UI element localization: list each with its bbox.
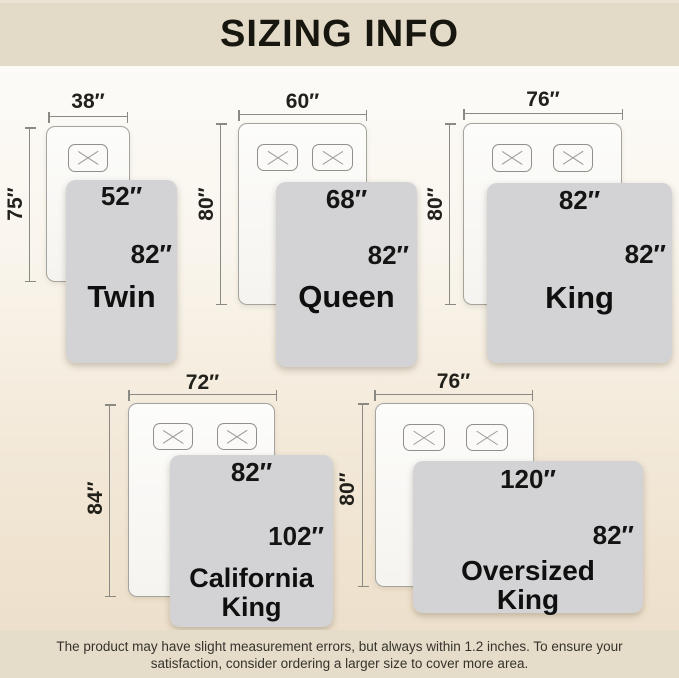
size-diagram-twin: 38″ 75″ 52″ 82″ Twin [0,0,679,678]
blanket-swatch [66,180,177,363]
blanket-length-label: 82″ [487,239,666,270]
blanket-length-label: 102″ [170,521,324,552]
blanket-width-label: 82″ [487,185,672,216]
sizing-info-infographic: SIZING INFO 38″ 75″ 52″ 82″ Twin 60″ 80″… [0,0,679,678]
pillow-icon [217,423,257,450]
mattress-length-label: 80″ [196,182,218,226]
width-dimension-line [238,114,367,115]
footer-note-line2: satisfaction, consider ordering a larger… [0,655,679,672]
size-diagram-california-king: 72″ 84″ 82″ 102″ California King [0,0,679,678]
size-name-line2: King [413,585,643,614]
length-dimension-line [362,403,363,587]
mattress-outline [46,126,130,282]
mattress-width-label: 76″ [463,88,623,112]
blanket-swatch [487,183,672,363]
mattress-length-label: 75″ [5,182,27,226]
mattress-outline [375,403,534,587]
width-dimension-line [463,113,623,114]
mattress-outline [238,123,367,305]
width-dimension-line [374,394,533,395]
blanket-swatch [276,182,417,367]
pillow-icon [153,423,193,450]
size-name-label: Twin [66,279,177,315]
mattress-length-label: 80″ [337,467,359,511]
pillow-icon [312,144,353,171]
size-name-line1: California [170,564,333,593]
width-dimension-line [48,116,128,117]
pillow-icon [553,144,593,172]
size-name-line2: King [170,593,333,622]
footer-note-line1: The product may have slight measurement … [0,638,679,655]
pillow-icon [403,424,445,451]
mattress-width-label: 38″ [48,90,128,114]
size-diagram-king: 76″ 80″ 82″ 82″ King [0,0,679,678]
blanket-width-label: 120″ [413,464,643,495]
mattress-width-label: 60″ [238,90,367,114]
blanket-width-label: 82″ [170,457,333,488]
length-dimension-line [220,123,221,305]
blanket-length-label: 82″ [276,240,409,271]
blanket-width-label: 68″ [276,184,417,215]
size-name-label: Queen [276,279,417,315]
size-name-label: King [487,280,672,316]
blanket-swatch [170,455,333,627]
page-title: SIZING INFO [220,13,459,56]
size-name-label: California King [170,564,333,622]
width-dimension-line [128,394,277,395]
size-name-label: Oversized King [413,556,643,614]
size-diagram-queen: 60″ 80″ 68″ 82″ Queen [0,0,679,678]
pillow-icon [68,144,108,172]
length-dimension-line [109,404,110,597]
pillow-icon [466,424,508,451]
size-diagram-oversized-king: 76″ 80″ 120″ 82″ Oversized King [0,0,679,678]
pillow-icon [492,144,532,172]
mattress-length-label: 80″ [425,182,447,226]
pillow-icon [257,144,298,171]
mattress-width-label: 76″ [374,370,533,394]
blanket-swatch [413,461,643,613]
size-name-line1: Oversized [413,556,643,585]
header-band: SIZING INFO [0,0,679,66]
length-dimension-line [29,127,30,282]
length-dimension-line [449,123,450,305]
footer-note: The product may have slight measurement … [0,630,679,678]
mattress-outline [463,123,622,305]
blanket-width-label: 52″ [66,181,177,212]
blanket-length-label: 82″ [413,520,634,551]
mattress-length-label: 84″ [85,476,107,520]
mattress-width-label: 72″ [128,371,277,395]
blanket-length-label: 82″ [66,239,172,270]
mattress-outline [128,403,275,597]
